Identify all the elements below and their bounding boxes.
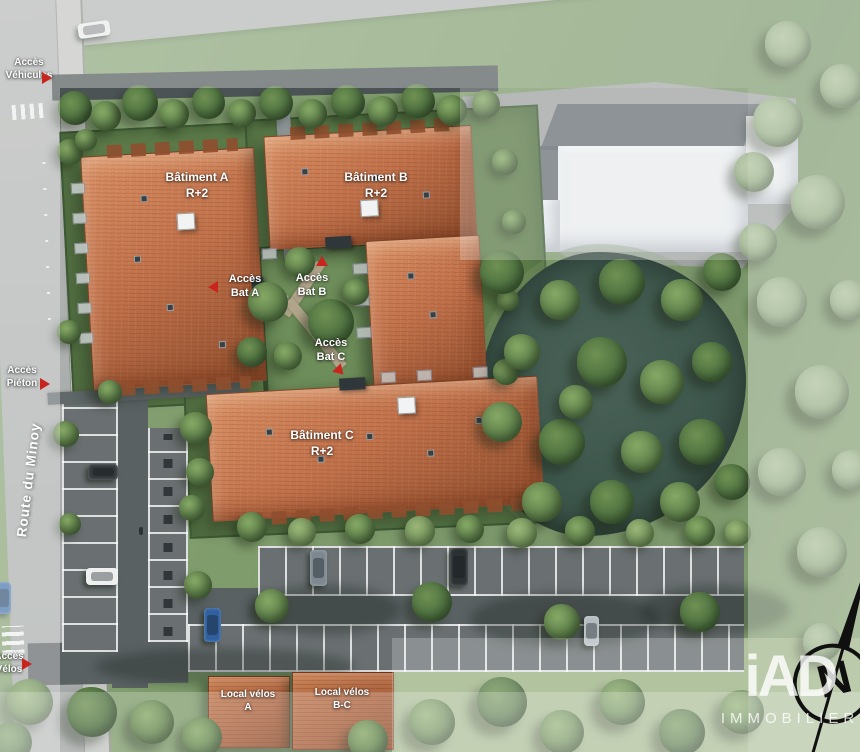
- shed-a-line1: Local vélos: [210, 688, 286, 701]
- tree: [753, 97, 803, 147]
- building-b-name: Bâtiment B: [321, 170, 431, 186]
- terrace: [473, 366, 489, 378]
- tree: [98, 380, 122, 404]
- shed-a-line2: A: [210, 701, 286, 714]
- access-c-line1: Accès: [290, 336, 372, 350]
- building-a-floors: R+2: [142, 186, 252, 202]
- access-b-line1: Accès: [271, 271, 353, 285]
- tree: [368, 96, 398, 126]
- existing-white-building: [558, 146, 748, 252]
- tree: [539, 419, 585, 465]
- tree: [540, 280, 580, 320]
- access-b-arrow-icon: [316, 256, 328, 266]
- brand-sub: IMMOBILIER: [700, 710, 860, 727]
- compass-needle-icon: [837, 553, 860, 651]
- shed-bc-line1: Local vélos: [294, 686, 390, 699]
- tree: [259, 86, 293, 120]
- building-c-name: Bâtiment C: [267, 428, 377, 444]
- tree: [758, 448, 806, 496]
- access-vehicules-arrow-icon: [42, 72, 52, 84]
- tree: [504, 334, 540, 370]
- balcony: [76, 272, 91, 284]
- label-bike-shed-a: Local vélos A: [210, 688, 286, 714]
- tree: [331, 85, 365, 119]
- tree: [237, 337, 267, 367]
- boundary-wash-lawn: [392, 638, 748, 752]
- tree: [795, 365, 849, 419]
- tree: [507, 518, 537, 548]
- tree: [680, 592, 720, 632]
- terrace: [353, 263, 369, 275]
- car: [450, 548, 468, 586]
- tree: [405, 516, 435, 546]
- building-shadow: [540, 104, 760, 150]
- tree: [522, 482, 562, 522]
- chimney: [427, 449, 434, 456]
- tree: [75, 129, 97, 151]
- tree: [692, 342, 732, 382]
- entrance-canopy-b: [325, 236, 352, 249]
- tree: [739, 223, 777, 261]
- tree: [830, 280, 860, 320]
- skylight: [177, 212, 196, 230]
- balcony: [71, 183, 86, 195]
- tree: [437, 95, 467, 125]
- tree: [626, 519, 654, 547]
- access-pieton-line1: Accès: [0, 364, 48, 377]
- access-velos-arrow-icon: [22, 658, 32, 670]
- tree: [757, 277, 807, 327]
- entrance-canopy-c: [339, 377, 366, 390]
- terrace: [381, 371, 397, 383]
- crosswalk-top: [12, 103, 45, 120]
- car: [204, 608, 221, 642]
- tree: [502, 210, 526, 234]
- tree: [401, 84, 435, 118]
- label-bike-shed-bc: Local vélos B-C: [294, 686, 390, 712]
- car: [310, 550, 327, 586]
- terrace: [417, 369, 433, 381]
- tree: [565, 516, 595, 546]
- skylight: [360, 199, 379, 217]
- site-plan: Bâtiment A R+2 Bâtiment B R+2 Bâtiment C…: [0, 0, 860, 752]
- label-building-b: Bâtiment B R+2: [321, 170, 431, 201]
- tree: [590, 480, 634, 524]
- balcony: [77, 302, 92, 314]
- tree: [734, 152, 774, 192]
- tree: [482, 402, 522, 442]
- tree: [186, 458, 214, 486]
- tree: [59, 513, 81, 535]
- terrace: [262, 248, 278, 260]
- tree: [228, 99, 256, 127]
- tree: [714, 464, 750, 500]
- tree: [559, 385, 593, 419]
- car: [86, 568, 118, 585]
- access-c-line2: Bat C: [290, 350, 372, 364]
- building-a-name: Bâtiment A: [142, 170, 252, 186]
- tree: [237, 512, 267, 542]
- label-access-bat-c: Accès Bat C: [290, 336, 372, 365]
- tree: [472, 90, 500, 118]
- access-a-arrow-icon: [208, 281, 218, 293]
- chimney: [429, 311, 436, 318]
- tree: [159, 99, 189, 129]
- tree: [791, 175, 845, 229]
- tree: [288, 518, 316, 546]
- tree: [53, 421, 79, 447]
- access-pieton-arrow-icon: [40, 378, 50, 390]
- tree: [544, 604, 580, 640]
- tree: [91, 101, 121, 131]
- tree: [599, 259, 645, 305]
- label-access-bat-b: Accès Bat B: [271, 271, 353, 300]
- tree: [765, 21, 811, 67]
- tree: [703, 253, 741, 291]
- tree: [661, 279, 703, 321]
- label-building-c: Bâtiment C R+2: [267, 428, 377, 459]
- tree: [179, 495, 205, 521]
- balcony: [79, 332, 94, 344]
- tree: [480, 250, 524, 294]
- tree: [180, 412, 212, 444]
- building-b-floors: R+2: [321, 186, 431, 202]
- tree: [192, 86, 225, 119]
- tree: [58, 91, 92, 125]
- tree: [492, 149, 518, 175]
- access-vehicules-line1: Accès: [0, 56, 58, 69]
- tree: [184, 571, 212, 599]
- tree: [621, 431, 663, 473]
- tree: [640, 360, 684, 404]
- tree: [298, 99, 327, 128]
- tree: [57, 320, 81, 344]
- chimney: [167, 304, 174, 311]
- skylight: [397, 396, 416, 414]
- watermark: iAD IMMOBILIER: [700, 648, 860, 727]
- tree: [456, 515, 484, 543]
- car: [0, 582, 11, 614]
- chimney: [407, 272, 414, 279]
- label-building-a: Bâtiment A R+2: [142, 170, 252, 201]
- chimney: [301, 168, 308, 175]
- car: [88, 464, 118, 480]
- balcony: [72, 212, 87, 224]
- tree: [832, 450, 860, 490]
- brand-logo: iAD: [700, 648, 860, 706]
- tree: [345, 514, 375, 544]
- shed-bc-line2: B-C: [294, 699, 390, 712]
- tree: [255, 589, 289, 623]
- tree: [679, 419, 725, 465]
- chimney: [134, 256, 141, 263]
- access-b-line2: Bat B: [271, 285, 353, 299]
- balcony: [74, 242, 89, 254]
- tree: [725, 520, 751, 546]
- chimney: [219, 341, 226, 348]
- tree: [412, 582, 452, 622]
- tree: [577, 337, 627, 387]
- tree: [122, 85, 158, 121]
- building-c-floors: R+2: [267, 444, 377, 460]
- tree: [820, 64, 860, 108]
- tree: [685, 516, 715, 546]
